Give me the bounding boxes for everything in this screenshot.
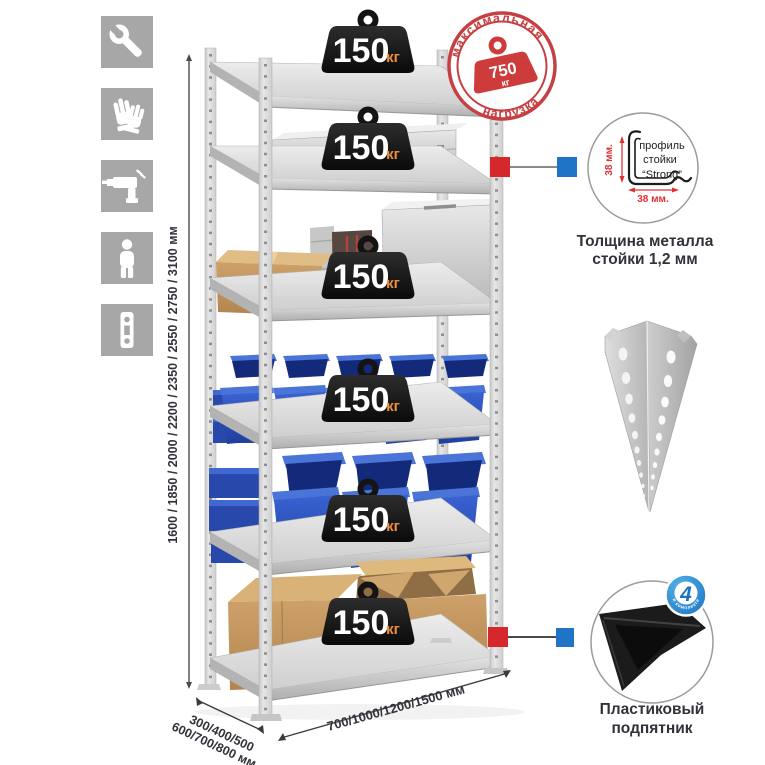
callout-marker-red [488,627,508,647]
profile-label-line1: профиль [639,140,685,152]
weight-value: 150 [333,129,390,167]
perforated-strip-icon [101,304,153,356]
included-count-badge: 4 в комплекте [666,575,707,616]
infographic-svg: 1600 / 1850 / 2000 / 2200 / 2350 / 2550 … [0,0,765,765]
profile-caption-line2: стойки 1,2 мм [592,251,697,268]
callout-bottom [488,627,574,647]
height-dimension: 1600 / 1850 / 2000 / 2200 / 2350 / 2550 … [166,54,192,689]
shelf-weight-badge: 150 кг [322,13,415,74]
callout-marker-blue [556,628,574,647]
weight-unit: кг [386,49,400,66]
badge-count: 4 [679,583,692,606]
weight-value: 150 [333,32,390,70]
weight-unit: кг [386,621,400,638]
rack-post-back-left [205,48,216,686]
profile-detail-circle: 38 мм. профиль стойки “Strong” 38 мм. [588,113,698,223]
rack-foot-plate [430,638,452,643]
weight-unit: кг [386,518,400,535]
profile-caption-line1: Толщина металла [577,233,714,250]
person-icon [101,232,153,284]
weight-value: 150 [333,501,390,539]
plastic-foot-circle: 4 в комплекте [591,575,713,704]
foot-caption-line1: Пластиковый [600,701,705,718]
callout-marker-red [490,157,510,177]
profile-dim-horizontal-label: 38 мм. [637,194,669,205]
weight-unit: кг [386,398,400,415]
callout-marker-blue [557,157,577,177]
gloves-icon [101,88,153,140]
weight-unit: кг [386,146,400,163]
drill-icon [101,160,153,212]
weight-value: 150 [333,258,390,296]
weight-unit: кг [386,275,400,292]
weight-value: 150 [333,604,390,642]
profile-dim-vertical-label: 38 мм. [604,144,615,176]
height-dimension-label: 1600 / 1850 / 2000 / 2200 / 2350 / 2550 … [166,226,180,543]
product-infographic: 1600 / 1850 / 2000 / 2200 / 2350 / 2550 … [0,0,765,765]
rack-foot-plate [197,684,221,690]
callout-top [490,157,577,177]
wrench-icon [101,16,153,68]
profile-label-line3: “Strong” [642,169,682,181]
foot-caption-line2: подпятник [611,720,692,737]
weight-value: 150 [333,381,390,419]
metal-angle-post [605,321,697,512]
profile-label-line2: стойки [643,154,677,166]
shelf-weight-badge: 150 кг [322,110,415,171]
assembly-icons [101,16,153,356]
rack-post-front-right [483,50,509,674]
